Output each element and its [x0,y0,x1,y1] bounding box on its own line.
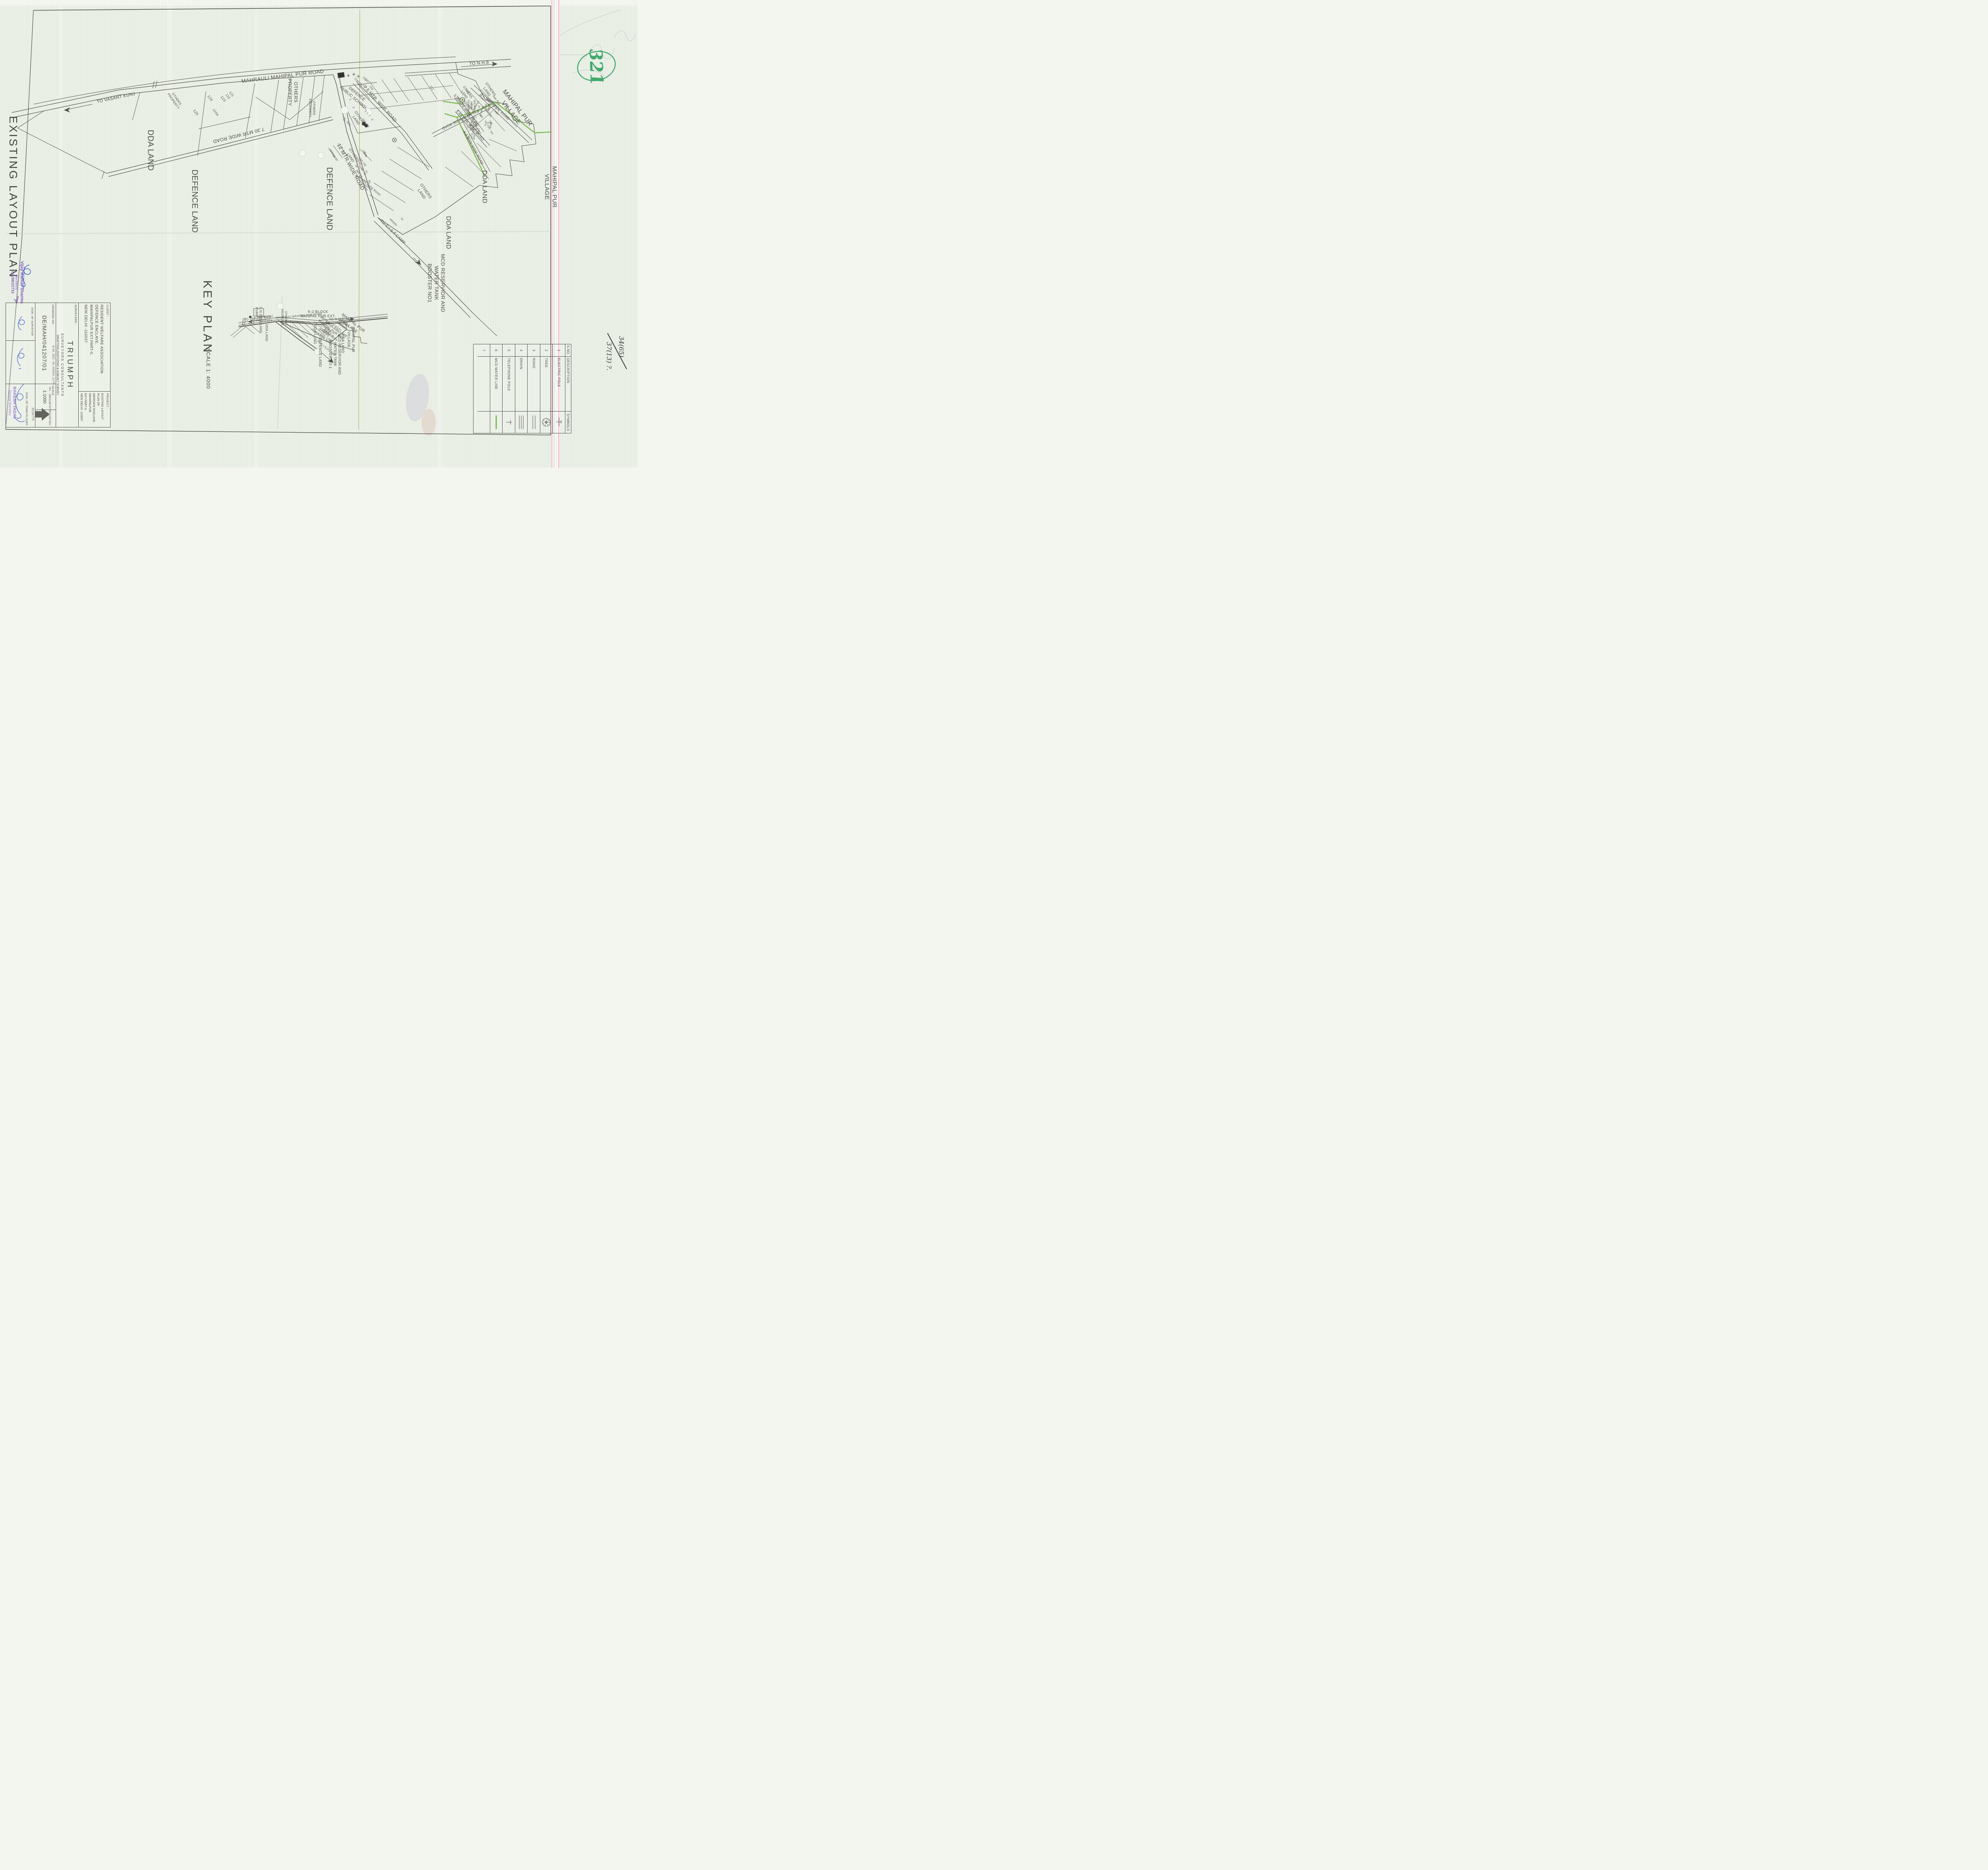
map-label: 4A [359,103,363,108]
legend-sno: 2 [540,344,553,356]
map-label: 35 [355,169,359,173]
map-label: DDA LAND [258,316,262,333]
map-label: 8 [370,118,373,121]
map-label: 93 [474,103,477,106]
legend-row: 6MCD WATER LINE [490,344,503,433]
legend-description: TREE [540,356,553,411]
map-label: OTHERS PROPERTY [287,79,299,106]
map-label: 125 [192,109,200,117]
map-label: 24 [330,152,334,156]
legend-symbol [553,411,565,433]
sign-town-planer-cell: SIGN. OF TOWN PLANER [6,384,35,427]
map-label: 95 [471,109,474,112]
map-label: 5.75 MTR.WIDE ROAD [354,174,381,197]
map-label: DEFENCE LAND [318,338,322,367]
legend-row: 3ROAD [528,344,541,433]
tree-icon [541,414,551,430]
map-label: 75 [470,118,474,122]
map-label: DDA LAND [264,324,268,341]
firm-name: TRIUMPH [66,341,74,389]
map-label: 86B [492,95,497,101]
map-label: OPEN PLOT 74A [472,128,480,134]
map-label: 76 [471,117,475,120]
map-label: 22 [328,149,332,153]
map-label: 100 [464,101,467,106]
map-label: 124 [206,94,214,102]
map-label: 20 [345,121,349,125]
north-cell [35,410,56,427]
legend-description [478,356,490,411]
map-label: 32 [362,172,366,176]
map-label: 23 [329,150,333,154]
legend-sno: 7 [478,344,490,356]
map-label: 86-87 [478,94,484,102]
map-label: 94 [472,106,476,109]
project-cell: PROJECT : EXISTING LAYOUT PLAN OF DEFENC… [78,391,111,427]
legend-description: MCD WATER LINE [490,356,503,411]
client-text: RESIDENT WELFARE ASSOCIATION DEFENCE ENC… [83,305,104,390]
map-label: 98 [467,106,470,109]
legend-symbol [515,411,528,433]
map-label: 5.40 MTR.WIDE ROAD [455,109,485,142]
legend-description: ROAD [528,356,540,411]
map-label: TO N.H.8 [469,60,489,67]
map-label: 99 [466,104,469,107]
map-label: 118A [357,81,363,87]
map-label: 89 [478,113,481,116]
map-label: OTHERS LAND [336,318,350,331]
map-label: 78B [488,120,493,126]
map-label: 14 [363,154,367,158]
map-label: 84 [493,111,497,115]
map-label: 36 [354,165,358,169]
map-label: 13A-13B [358,157,366,167]
legend-symbol [490,411,503,433]
map-label: OPEN PLOT 71A [470,121,477,127]
map-label: DDA LAND [340,334,345,353]
map-label: 70 [464,109,469,114]
project-text: EXISTING LAYOUT PLAN OF DEFENCE ENCLAVE,… [79,393,104,425]
map-label: OPEN PLOT 83 [481,104,490,111]
telephone-pole-icon [505,414,513,430]
legend-sno: 3 [528,344,540,356]
map-label: 101 [462,100,465,104]
legend-sno: 6 [490,344,503,356]
map-label: 37 [360,183,364,187]
map-label: 124A [212,108,219,117]
map-label: OTHERS LAND [324,332,338,345]
legend-sno: 4 [515,344,528,356]
map-label: MAHIPAL PUR VILLAGE [543,166,558,208]
map-label: 4 [361,106,365,110]
map-label: 103 [464,88,470,95]
map-label: 112 [429,85,434,91]
sign-surveyor-cell: SIGN. OF SURVEYOR [6,303,35,341]
map-label: 118 [353,77,359,83]
project-label: PROJECT : [105,393,109,425]
map-label: OTHERS PROPERTY [280,309,287,326]
map-label: 48 [367,180,371,184]
handwritten-fraction-bottom: 37(13) ?. [606,342,613,371]
client-cell: CLIENT : RESIDENT WELFARE ASSOCIATION DE… [78,303,111,392]
map-label: MAHIPAL PUR VILLAGE [337,313,365,338]
map-label: 4.0 MTR.WIDE ROAD [462,130,484,165]
legend-row: 4DRAIN [515,344,528,433]
map-label: 78A [489,130,494,136]
map-label: OTHERS PROPERTY [308,99,316,117]
map-label: DEFENCE LAND [190,169,200,233]
map-label: OTHERS LAND [317,324,332,336]
map-label: 121 [228,91,235,98]
firm-line1: SURVEYORS CONSULTANTS [60,305,64,425]
map-label: OTHERS PROPERTY [256,316,273,323]
legend-header-sno: S.NO. [565,344,571,356]
map-label: MAHIPAL PUR VILLAGE [494,88,534,133]
handwritten-fraction-top: 34(65) [618,336,625,357]
page-number-annotation: 321 [585,48,607,85]
client-label: CLIENT : [105,305,109,390]
map-label: DDA LAND [480,170,488,203]
drawing-no-cell: DRAWING NO : DE/MAH/041207/01 [35,303,56,384]
map-label: 74 [469,120,473,124]
legend-symbol [528,411,540,433]
map-label: 15A-15B [361,118,369,128]
map-label: 91 [477,106,480,109]
map-label: 1 [340,88,344,91]
map-label: 7 [367,115,371,117]
map-label: 83A [495,100,501,105]
map-label: 31 [364,170,368,174]
surveyor-firm-cell: SURVEYORS : TRIUMPH SURVEYORS CONSULTANT… [56,303,79,427]
map-label: OTHERS LAND [480,82,497,100]
sign-town-planer-label: SIGN. OF TOWN PLANER [25,386,28,425]
architect-stamp-name: Vijay Kumar Sharma [19,261,24,304]
scale-label: SCALE [50,386,54,408]
map-label: 92 [476,101,479,104]
drawing-no-value: DE/MAH/041207/01 [41,305,49,382]
map-label: 3 [351,106,355,110]
map-label: 82-81 [485,110,493,118]
map-label: 123 [219,95,227,103]
map-label: 19 [342,118,346,122]
map-label: 5.80 MTR. WIDE ROAD [441,108,480,130]
map-label: OPEN PLOT 74B [468,133,475,140]
map-label: MAURYA SISHU ASHRAM [466,100,476,111]
title-block: CLIENT : RESIDENT WELFARE ASSOCIATION DE… [6,303,111,427]
map-label: OTHERS PROPERTY [166,90,183,110]
map-label: C.N.G. PUMP [254,307,262,318]
legend-header-symbols: SYMBOLS [565,411,571,433]
map-label: DEFENCE ENCLAVE MAHIPAL PUR EXT. PART-II [315,315,348,345]
map-label: 119 [361,76,367,82]
legend-sno: 5 [503,344,515,356]
map-label: 38 [362,185,366,189]
sign-surveyor-label: SIGN. OF SURVEYOR [30,305,34,339]
legend-header-description: DESCRIPTION [565,356,571,411]
drain-icon [518,414,524,430]
map-label: DDA LAND [313,325,317,344]
map-label: 85 [495,112,499,116]
map-label: 115 [369,94,375,100]
map-label: 42 [392,221,396,225]
map-label: 14B [361,150,367,155]
legend-sno: 1 [553,344,565,356]
map-label: 25 [331,154,335,158]
map-label: 39 [364,188,368,192]
map-label: 5.08MTR.WIDE ROAD [452,93,480,127]
map-label: TO C.I.S.F.CAMP [316,340,336,358]
map-label: K-2 BLOCK MAHIPAL PUR EXT. [301,310,336,319]
map-label: DDA LAND [146,130,155,171]
map-label: DEFENCE LAND [324,167,334,230]
map-label: 122 [225,93,231,100]
architect-stamp: Vijay Kumar Sharma (Architect) CA/98/227… [10,261,24,304]
map-label: 21 [347,123,351,127]
map-label: 71 [466,111,471,116]
map-label: TO C.I.S.F.CAMP [379,219,406,245]
map-label: DEFENCE PUBLIC SCHOOL [339,82,371,111]
map-label: 26-27 [332,155,338,163]
legend-description: ELECTRIC POLE [553,356,565,411]
map-label: DDA LAND [444,216,452,249]
map-label: 97-96 [469,103,472,110]
map-label: 44 [400,217,404,221]
map-label: MCD RESERVIOR AND WATER TANK BOOSTER NO.… [328,334,342,375]
road-icon [531,414,537,430]
map-label: 78 [487,126,491,130]
map-label: TO VASANT KUNJ [96,91,136,105]
map-label: OTHERS LAND [349,110,366,128]
map-label: OTHERS LAND [344,148,360,166]
map-label: 40 [388,218,392,222]
sign-middle-cell [6,340,35,384]
scale-cell: SCALE 1:1000 [35,384,56,410]
scale-value: 1:1000 [41,386,47,408]
map-label: 2 [348,98,352,102]
map-label: 86B [485,98,491,104]
legend-row: 7 [478,344,491,433]
map-label: 43 [393,223,397,227]
electric-pole-icon [555,414,563,430]
map-label: TO VASANT KUNJ [244,314,273,322]
map-label: 7.5 MTR. WIDE ROAD [362,85,398,124]
map-label: MCD RESERVIOR AND WATER TANK BOOSTER NO1 [427,254,446,313]
map-label: OTHERS LAND [459,85,474,102]
map-label: 34 [356,171,360,175]
map-label: 41 [390,220,394,224]
map-label: MAHRAULI MAHIPAL PUR ROAD [276,313,322,320]
legend-row: 2TREE [540,344,553,433]
legend-description: TELEPHONE POLE [503,356,515,411]
legend-description: DRAIN [515,356,528,411]
map-label: 12 MTR.WIDE ROAD [336,142,366,192]
map-label: OPEN PLOT 79 [484,122,491,128]
map-label: 7.30 MTR.WIDE ROAD [212,126,265,145]
legend-table: S.NO. DESCRIPTION SYMBOLS 1ELECTRIC POLE… [473,344,571,433]
legend-row: 5TELEPHONE POLE [503,344,516,433]
legend-symbol [478,411,490,433]
map-label: 14A [362,152,367,157]
map-label: 120 [364,78,370,84]
legend-symbol [503,411,515,433]
map-label: 29 [360,168,364,172]
architect-stamp-title: (Architect) [15,261,19,304]
map-label: 116 [368,85,374,91]
map-label: 12 MTR.WIDE ROAD [310,328,332,346]
map-label: 77 [473,115,477,119]
map-label: MAHIPAL PUR VILLAGE [346,327,355,352]
map-label: 90 [475,110,478,113]
legend-body: 1ELECTRIC POLE2TREE3ROAD4DRAIN5TELEPHONE… [478,344,566,433]
map-label: 79 [483,120,487,125]
map-label: OTHERS LAND [315,328,330,341]
map-label: 28 [357,162,361,166]
legend-header-row: S.NO. DESCRIPTION SYMBOLS [565,344,571,433]
map-label: 80 [479,115,483,119]
map-label: 6.0 MTR.WIDE ROAD [480,92,511,121]
map-label: TO N.H.8 [329,317,344,322]
map-label: 5 [364,110,367,113]
architect-stamp-reg: CA/98/22733 [10,261,15,304]
map-label: MAHRAULI MAHIPAL PUR ROAD [241,68,324,85]
map-label: 18 [342,117,346,120]
scanned-drawing-sheet: EXISTING LAYOUT PLAN KEY PLAN SCALE 1: 4… [0,0,637,468]
map-label: 6 [365,112,369,115]
map-label: 88 [479,109,482,112]
drawing-no-label: DRAWING NO : [50,305,54,382]
map-label: 33 [358,175,362,179]
legend-symbol [540,411,553,433]
map-label: 29A [358,165,363,171]
map-label: OTHERS LAND [414,183,433,203]
legend-row: 1ELECTRIC POLE [553,344,566,433]
mcd-water-line-icon [494,414,498,430]
map-label: 117 [361,83,367,89]
map-label: OPEN PLOT 72 [466,124,474,130]
